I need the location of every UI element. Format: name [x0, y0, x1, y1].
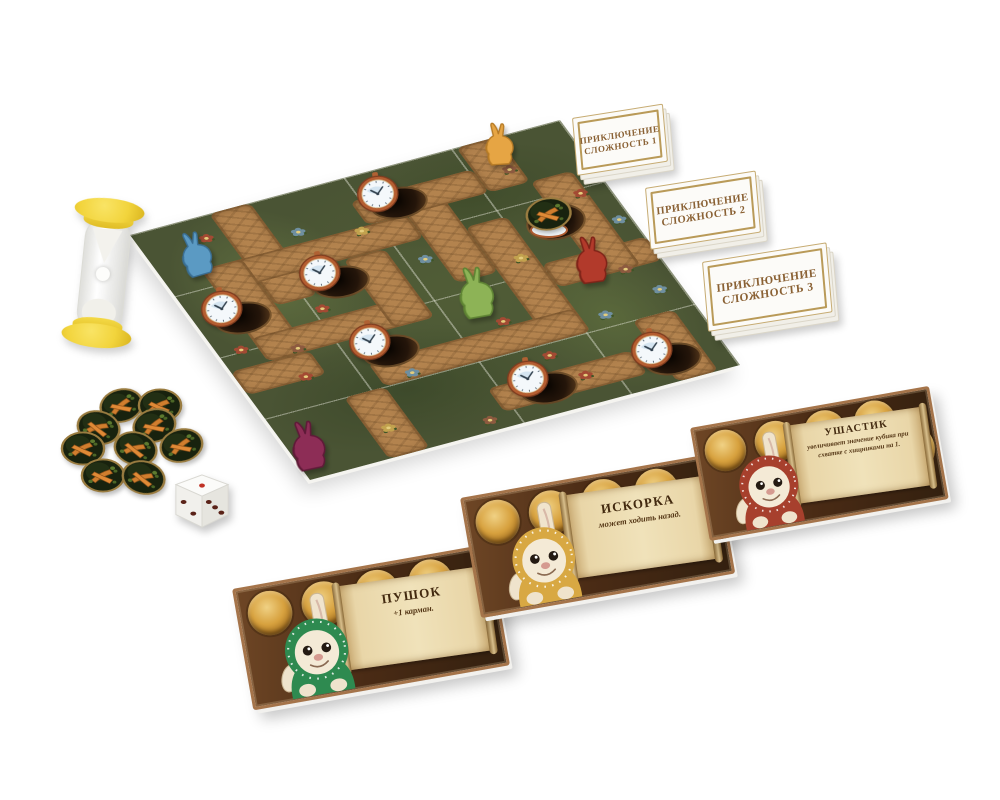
- flower-decoration: [648, 283, 671, 297]
- clock-token: [626, 325, 678, 378]
- clock-token: [196, 284, 248, 337]
- sand-timer-waist: [95, 266, 110, 281]
- bunny-illustration: [716, 423, 821, 538]
- character-card-pushok: ПУШОК +1 карман.: [232, 544, 510, 711]
- bunny-illustration: [260, 584, 372, 708]
- adventure-deck-difficulty-1: ПРИКЛЮЧЕНИЕ СЛОЖНОСТЬ 1: [572, 104, 668, 176]
- flower-decoration: [287, 225, 310, 239]
- sand-top: [89, 228, 122, 265]
- flower-decoration: [414, 252, 437, 266]
- board-game-product-photo: ПРИКЛЮЧЕНИЕ СЛОЖНОСТЬ 1 ПРИКЛЮЧЕНИЕ СЛОЖ…: [0, 0, 1000, 800]
- die: [171, 472, 233, 532]
- character-card-ushastik: УШАСТИК увеличивает значение кубика при …: [690, 386, 949, 541]
- character-card-iskorka: ИСКОРКА может ходить назад.: [460, 453, 735, 618]
- flower-decoration: [479, 413, 502, 427]
- bunny-illustration: [487, 493, 598, 616]
- flower-decoration: [230, 343, 253, 357]
- adventure-deck-difficulty-2: ПРИКЛЮЧЕНИЕ СЛОЖНОСТЬ 2: [645, 170, 761, 249]
- carrot-token-in-burrow: [523, 194, 576, 239]
- clock-token: [294, 248, 346, 301]
- clock-token: [352, 169, 404, 222]
- adventure-deck-difficulty-3: ПРИКЛЮЧЕНИЕ СЛОЖНОСТЬ 3: [702, 242, 833, 332]
- rabbit-meeple-red: [567, 230, 616, 291]
- clock-token: [344, 317, 396, 370]
- flower-decoration: [311, 302, 334, 316]
- clock-token: [502, 354, 554, 407]
- rabbit-meeple-orange: [479, 119, 520, 173]
- sand-timer: [58, 195, 147, 352]
- flower-decoration: [594, 308, 617, 322]
